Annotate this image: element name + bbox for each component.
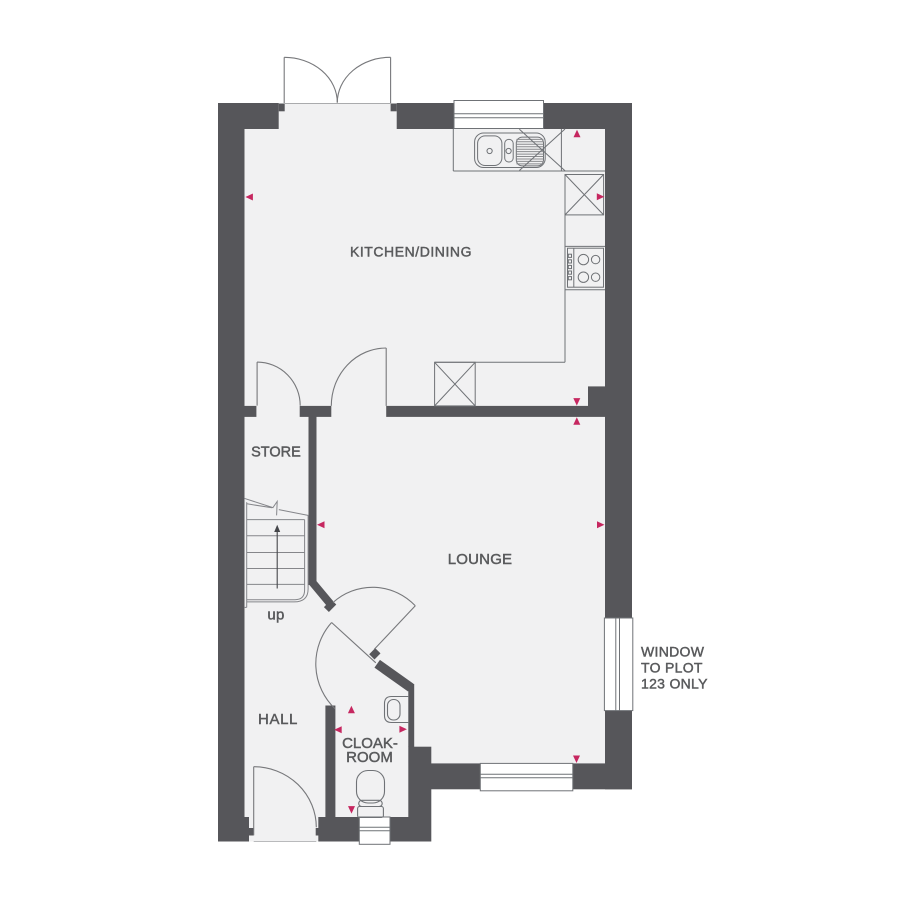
svg-text:WINDOW: WINDOW	[641, 644, 705, 660]
svg-text:TO PLOT: TO PLOT	[641, 660, 703, 676]
svg-text:123 ONLY: 123 ONLY	[641, 676, 708, 692]
svg-text:KITCHEN/DINING: KITCHEN/DINING	[350, 243, 472, 259]
svg-text:up: up	[267, 607, 284, 624]
svg-text:HALL: HALL	[258, 711, 298, 728]
svg-text:LOUNGE: LOUNGE	[448, 551, 513, 568]
svg-text:STORE: STORE	[251, 445, 301, 461]
svg-text:ROOM: ROOM	[346, 749, 393, 766]
